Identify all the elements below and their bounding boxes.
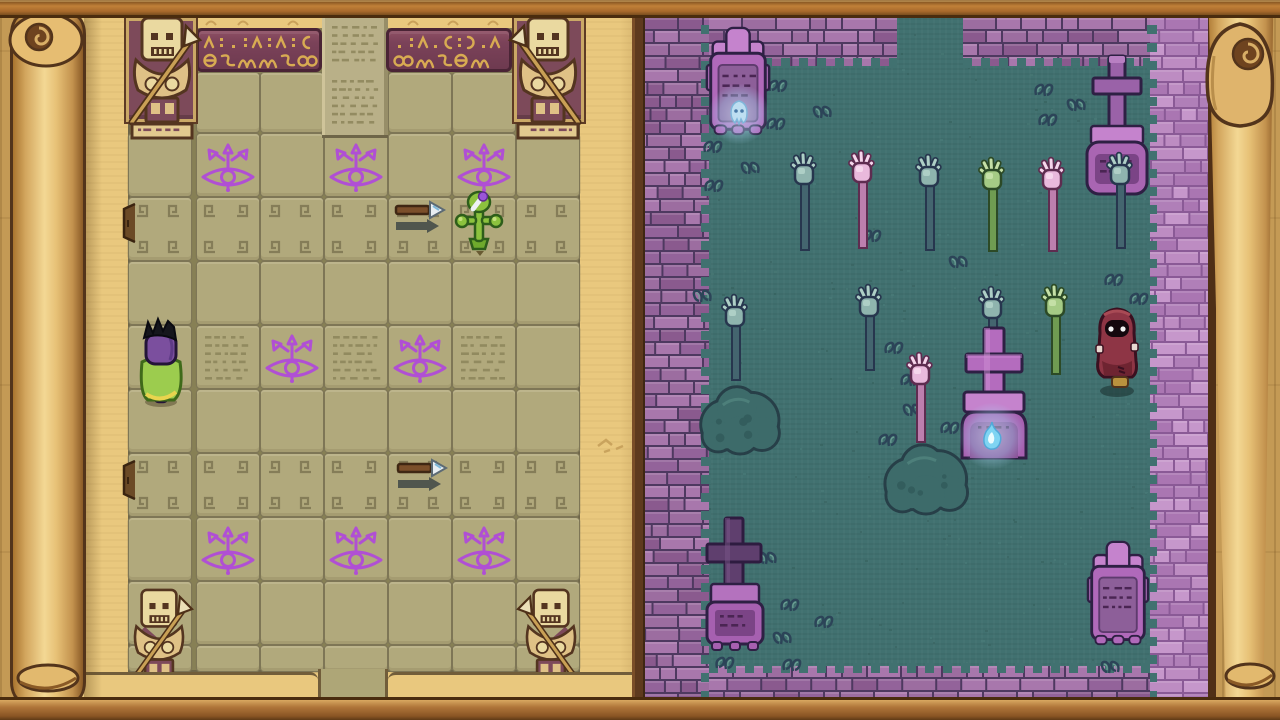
map-tile [389,390,451,452]
zombie-hand [909,150,949,268]
map-tile [325,262,387,324]
map-tile [261,646,323,671]
eye-sigil-icon [455,139,513,194]
bush [701,384,779,454]
map-tile [389,518,451,580]
grass-tuft [1066,95,1088,113]
map-tile [389,73,451,132]
map-tile [517,134,579,196]
map-tile [453,582,515,644]
map-tile [517,326,579,388]
map-tile [325,582,387,644]
grass-tuft [778,595,800,613]
map-tile [197,262,259,324]
hieroglyph-banner [386,28,512,72]
frame-top-bar [0,0,1280,18]
hieroglyph-text-tile [327,74,383,130]
zombie-hand [1035,280,1075,392]
guardian-statue [122,583,196,683]
parchment-crack [596,436,626,454]
dart-item[interactable] [394,200,446,238]
dart-item[interactable] [396,458,448,496]
grass-tuft [713,653,735,671]
grass-tuft [1100,657,1122,675]
guardian-statue [506,10,590,140]
player-marker[interactable] [134,316,188,408]
scroll-bottom-edge [80,672,318,700]
map-tile [453,646,515,671]
grass-tuft [702,176,724,194]
door-marker[interactable] [119,459,137,501]
map-tile [261,73,323,132]
eye-sigil-icon [391,330,449,385]
eye-sigil-icon [199,139,257,194]
map-tile [197,646,259,671]
map-tile [261,582,323,644]
game-screen [0,0,1280,720]
map-tile [453,390,515,452]
tombstone-ornate [1086,540,1150,648]
map-tile [389,134,451,196]
grass-tuft [692,286,714,304]
eye-sigil-icon [327,139,385,194]
map-tile [261,262,323,324]
hieroglyph-banner [196,28,322,72]
grass-tuft [780,655,802,673]
map-tile [129,518,191,580]
hieroglyph-text-tile [456,330,512,384]
map-tile [261,518,323,580]
eye-sigil-icon [327,522,385,577]
zombie-hand [972,153,1012,269]
grass-tuft [772,628,794,646]
sprout-sword-item[interactable] [454,191,504,257]
hieroglyph-text-tile [200,330,256,384]
map-tile [389,582,451,644]
grass-tuft [740,158,762,176]
eye-sigil-icon [199,522,257,577]
map-tile [517,262,579,324]
map-tile [453,262,515,324]
map-tile [197,73,259,132]
map-tile [325,390,387,452]
wall-left [645,18,709,700]
map-tile [197,582,259,644]
map-tile [517,390,579,452]
temple-map-panel[interactable] [0,0,646,720]
grass-tuft [1032,80,1054,98]
spirit-orb[interactable] [959,403,1025,469]
zombie-hand [849,280,889,388]
wall-right [1150,18,1208,700]
zombie-hand [1032,153,1072,269]
hieroglyph-text-tile [327,20,383,70]
zombie-hand [842,146,882,266]
bush [884,442,968,514]
grass-tuft [1036,110,1058,128]
map-tile [129,134,191,196]
panel-divider [632,14,646,702]
grass-tuft [1102,270,1124,288]
zombie-hand [715,290,755,398]
eye-sigil-icon [455,522,513,577]
guardian-statue [514,583,588,683]
tombstone-cross-dark [702,516,768,650]
map-tile [261,390,323,452]
door-marker[interactable] [119,202,137,244]
grass-tuft [812,102,834,120]
map-tile [261,134,323,196]
wall-grass-fringe [709,663,1150,673]
map-tile [389,262,451,324]
meander-border-row [128,197,580,257]
eye-sigil-icon [263,330,321,385]
grass-tuft [701,137,723,155]
grass-tuft [812,612,834,630]
hieroglyph-text-tile [328,330,384,384]
map-tile [517,518,579,580]
hooded-npc[interactable] [1088,303,1146,398]
zombie-hand [784,148,824,268]
graveyard-panel[interactable] [645,18,1208,700]
map-bottom-tab [318,669,388,700]
meander-border-row [128,453,580,513]
guardian-statue [120,10,204,140]
frame-bottom-bar [0,697,1280,720]
grass-tuft [948,252,970,270]
scroll-bottom-edge [388,672,640,700]
map-tile [389,646,451,671]
map-tile [325,646,387,671]
map-tile [129,262,191,324]
spirit-orb[interactable] [709,84,769,144]
map-tile [197,390,259,452]
zombie-hand [1100,148,1140,266]
